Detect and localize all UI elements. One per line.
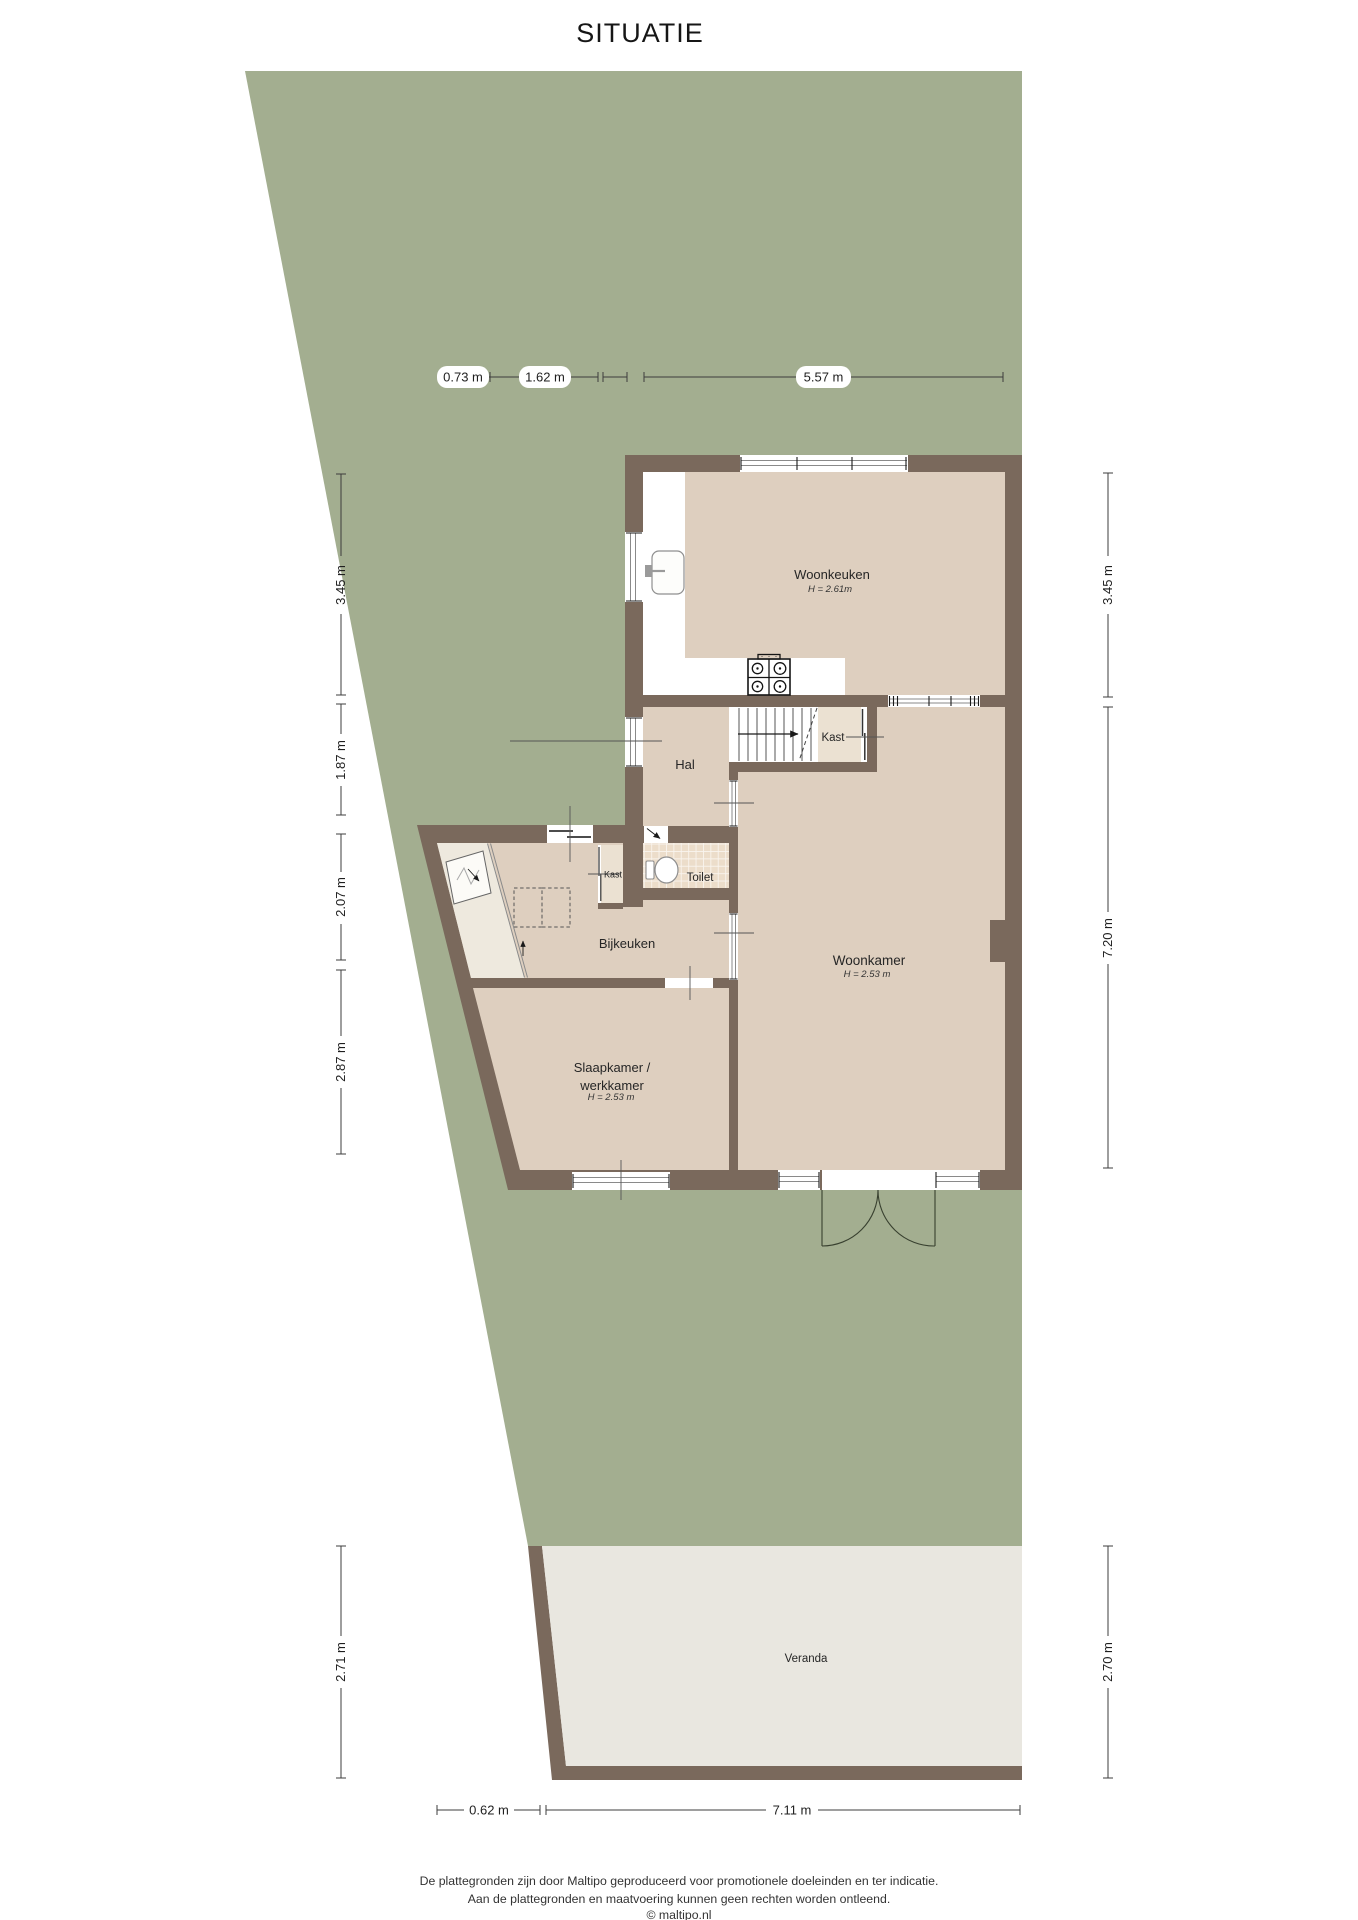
stove-fixture xyxy=(748,655,790,696)
glass-door-hal xyxy=(729,780,738,827)
veranda-floor xyxy=(542,1546,1022,1766)
kast-bottom-wall xyxy=(598,903,623,909)
footer-line-1: De plattegronden zijn door Maltipo gepro… xyxy=(420,1874,939,1888)
dim-label: 5.57 m xyxy=(804,370,844,385)
dim-label: 3.45 m xyxy=(1100,565,1115,605)
dim-label: 2.70 m xyxy=(1100,1642,1115,1682)
toilet-fixture xyxy=(646,857,678,883)
kitchen-counter-bottom xyxy=(643,658,845,695)
floorplan-svg: SITUATIE xyxy=(0,0,1358,1920)
dim-label: 2.71 m xyxy=(333,1642,348,1682)
room-label-kast-stairs: Kast xyxy=(821,732,845,744)
room-label-veranda: Veranda xyxy=(785,1653,828,1665)
veranda xyxy=(528,1546,1022,1780)
room-label-woonkeuken: Woonkeuken xyxy=(794,567,870,582)
slaapkamer-door-opening xyxy=(665,978,713,988)
dim-label: 3.45 m xyxy=(333,565,348,605)
toilet-door xyxy=(644,826,668,843)
dim-label: 2.07 m xyxy=(333,877,348,917)
chimney-bump xyxy=(990,920,1005,962)
plan-title: SITUATIE xyxy=(576,18,704,48)
room-label-woonkamer: Woonkamer xyxy=(833,953,906,968)
dim-label: 0.73 m xyxy=(443,370,483,385)
room-label-slaapkamer-1: Slaapkamer / xyxy=(574,1060,651,1075)
dim-label: 1.87 m xyxy=(333,740,348,780)
room-label-slaapkamer-2: werkkamer xyxy=(579,1078,644,1093)
dim-label: 0.62 m xyxy=(469,1803,509,1818)
window-woonkamer-left xyxy=(778,1170,820,1190)
woonkamer-floor xyxy=(738,707,1005,1170)
room-label-kast-bijkeuken: Kast xyxy=(604,870,623,880)
glass-door-bijkeuken xyxy=(729,913,738,980)
toilet-bottom-wall xyxy=(633,888,729,900)
room-label-hal: Hal xyxy=(675,757,695,772)
room-label-bijkeuken: Bijkeuken xyxy=(599,936,655,951)
dim-label: 7.20 m xyxy=(1100,918,1115,958)
glazed-partition xyxy=(888,695,980,707)
footer-line-3: © maltipo.nl xyxy=(646,1908,711,1920)
footer-line-2: Aan de plattegronden en maatvoering kunn… xyxy=(468,1892,891,1906)
window-left-lower xyxy=(625,717,643,767)
window-woonkamer-right xyxy=(935,1170,980,1190)
room-height-slaapkamer: H = 2.53 m xyxy=(588,1092,635,1103)
room-label-toilet: Toilet xyxy=(687,872,715,884)
room-height-woonkamer: H = 2.53 m xyxy=(844,969,891,980)
window-top-facade xyxy=(740,455,908,472)
dim-label: 7.11 m xyxy=(773,1803,812,1818)
dim-label: 2.87 m xyxy=(333,1042,348,1082)
window-left-upper xyxy=(625,532,643,602)
dim-label: 1.62 m xyxy=(525,370,565,385)
room-height-woonkeuken: H = 2.61m xyxy=(808,584,852,595)
